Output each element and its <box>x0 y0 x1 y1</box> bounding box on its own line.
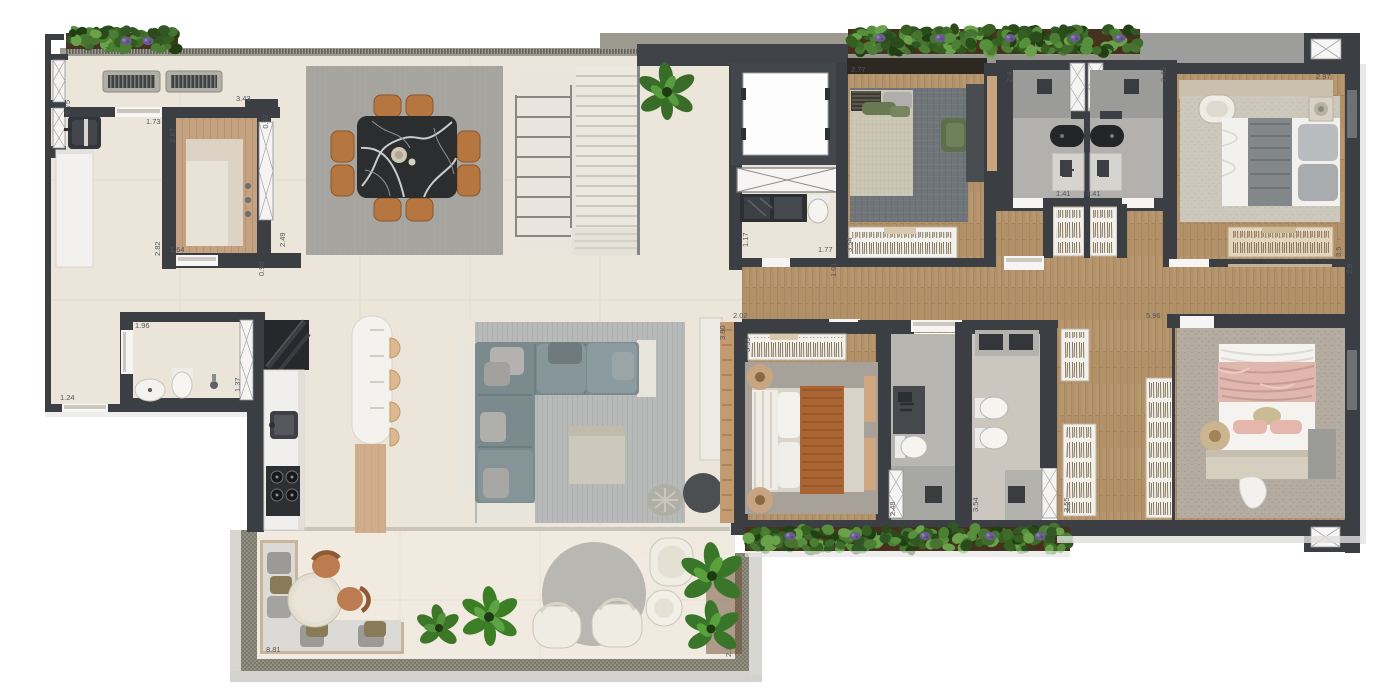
svg-text:1.64: 1.64 <box>170 245 185 254</box>
svg-text:1.73: 1.73 <box>146 117 161 126</box>
svg-text:1.41: 1.41 <box>1056 189 1071 198</box>
svg-text:8.81: 8.81 <box>266 645 281 654</box>
svg-text:1.17: 1.17 <box>741 232 750 247</box>
svg-text:2.97: 2.97 <box>1316 72 1331 81</box>
svg-text:3.54: 3.54 <box>845 237 854 252</box>
svg-text:2.3: 2.3 <box>724 647 733 657</box>
svg-text:1.37: 1.37 <box>233 377 242 392</box>
svg-text:5.96: 5.96 <box>1146 311 1161 320</box>
svg-text:1.24: 1.24 <box>60 393 75 402</box>
svg-text:3.55: 3.55 <box>1062 497 1071 512</box>
svg-text:2.77: 2.77 <box>851 65 866 74</box>
svg-text:2.9: 2.9 <box>1345 264 1354 274</box>
svg-text:1.96: 1.96 <box>135 321 150 330</box>
svg-text:3.43: 3.43 <box>236 94 251 103</box>
svg-text:0.75: 0.75 <box>63 100 72 115</box>
svg-text:1.01: 1.01 <box>829 262 838 277</box>
svg-text:2.45: 2.45 <box>1159 67 1168 82</box>
svg-text:2.67: 2.67 <box>168 128 177 143</box>
svg-text:3.54: 3.54 <box>971 497 980 512</box>
svg-text:0.97: 0.97 <box>261 114 270 129</box>
svg-text:0.90: 0.90 <box>257 261 266 276</box>
svg-text:2.82: 2.82 <box>153 241 162 256</box>
svg-text:2.4: 2.4 <box>1005 72 1014 82</box>
svg-text:2.48: 2.48 <box>888 501 897 516</box>
svg-text:3.5: 3.5 <box>1334 247 1343 257</box>
svg-text:2.02: 2.02 <box>733 311 748 320</box>
svg-text:2.49: 2.49 <box>278 232 287 247</box>
svg-text:1.41: 1.41 <box>1086 189 1101 198</box>
svg-text:3.80: 3.80 <box>718 325 727 340</box>
svg-text:1.77: 1.77 <box>818 245 833 254</box>
svg-text:3.55: 3.55 <box>743 337 752 352</box>
